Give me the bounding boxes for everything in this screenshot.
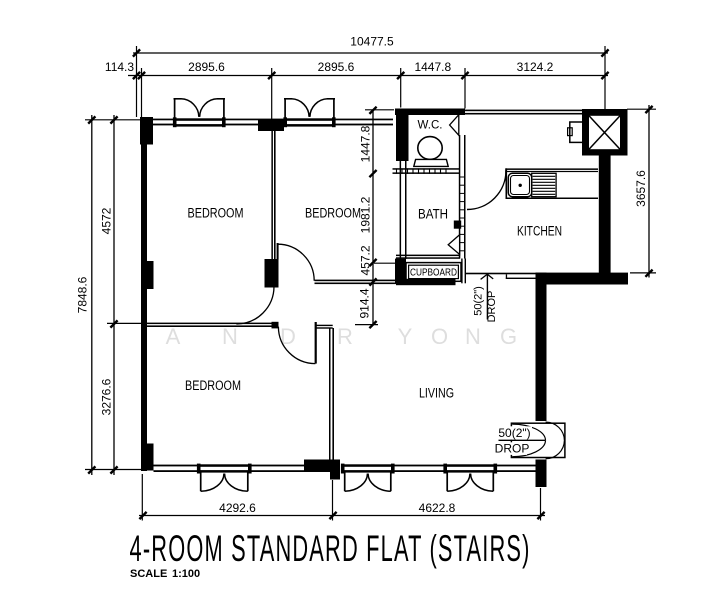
svg-text:W.C.: W.C. — [418, 120, 443, 132]
svg-text:50(2"): 50(2") — [473, 286, 485, 316]
svg-text:914.4: 914.4 — [358, 288, 372, 318]
svg-text:Y: Y — [398, 324, 413, 349]
svg-text:3657.6: 3657.6 — [634, 170, 648, 207]
svg-text:N: N — [465, 324, 481, 349]
svg-text:R: R — [337, 324, 353, 349]
svg-text:50(2"): 50(2") — [498, 426, 530, 440]
svg-text:1:100: 1:100 — [172, 568, 200, 580]
svg-text:BATH: BATH — [418, 207, 448, 222]
svg-text:A: A — [166, 324, 181, 349]
svg-text:DROP: DROP — [486, 291, 498, 323]
svg-text:1447.8: 1447.8 — [414, 60, 451, 74]
svg-text:N: N — [222, 324, 238, 349]
svg-text:3124.2: 3124.2 — [517, 60, 554, 74]
svg-text:O: O — [431, 324, 448, 349]
svg-text:4-ROOM STANDARD FLAT (STAIRS): 4-ROOM STANDARD FLAT (STAIRS) — [130, 529, 531, 569]
svg-text:BEDROOM: BEDROOM — [305, 206, 361, 221]
svg-text:3276.6: 3276.6 — [100, 378, 114, 415]
svg-text:2895.6: 2895.6 — [188, 60, 225, 74]
svg-text:KITCHEN: KITCHEN — [517, 224, 562, 239]
svg-text:G: G — [500, 324, 517, 349]
svg-text:4292.6: 4292.6 — [219, 501, 256, 515]
svg-text:4572: 4572 — [100, 207, 114, 234]
svg-text:457.2: 457.2 — [359, 245, 373, 275]
svg-text:CUPBOARD: CUPBOARD — [410, 267, 457, 279]
svg-text:BEDROOM: BEDROOM — [188, 206, 244, 221]
svg-text:LIVING: LIVING — [419, 386, 454, 401]
svg-text:DROP: DROP — [495, 442, 530, 456]
svg-text:114.3: 114.3 — [105, 60, 134, 74]
svg-text:1447.8: 1447.8 — [359, 125, 373, 162]
svg-text:BEDROOM: BEDROOM — [185, 378, 241, 393]
svg-text:D: D — [280, 324, 296, 349]
svg-text:2895.6: 2895.6 — [318, 60, 355, 74]
svg-text:10477.5: 10477.5 — [350, 35, 394, 49]
svg-text:4622.8: 4622.8 — [419, 501, 456, 515]
svg-text:7848.6: 7848.6 — [76, 276, 90, 313]
svg-text:SCALE: SCALE — [130, 568, 167, 580]
